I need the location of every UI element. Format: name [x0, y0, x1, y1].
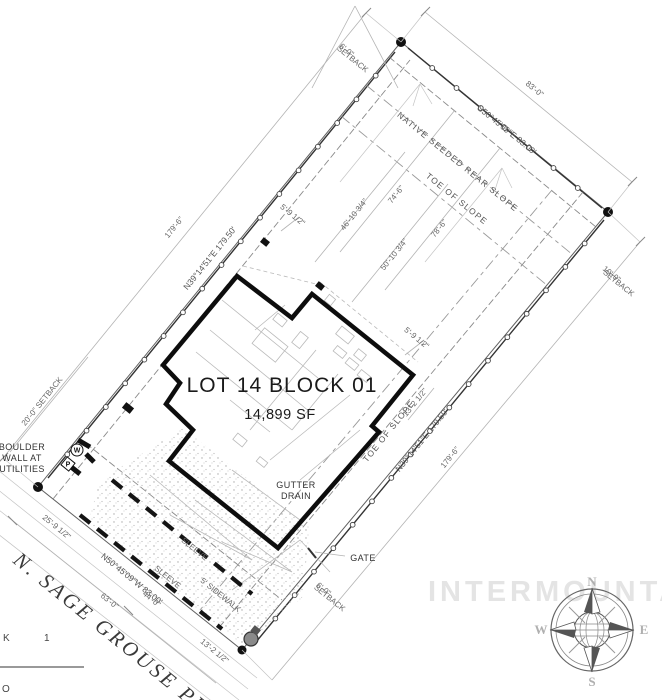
compass-east-petal: [608, 622, 634, 630]
lot-title: LOT 14 BLOCK 01: [187, 374, 378, 397]
bearing-ne: S50°45'09"E 83.00': [475, 103, 538, 157]
dim-street-13: 13'-2 1/2": [199, 637, 231, 665]
watermark-text: INTERMOUNTAIN: [428, 576, 662, 608]
sheet-edge-fragments: K 1 O: [0, 633, 84, 695]
dim-nw-overall: 179'-6": [163, 215, 186, 240]
power-pedestal-label: P: [66, 462, 71, 469]
setback-street-label: 20'-0" SETBACK: [20, 375, 65, 428]
gate-label: GATE: [350, 553, 375, 563]
boulder-wall-label-2: WALL AT: [2, 453, 42, 463]
dim-depth-46: 46'-10 3/4": [339, 197, 370, 232]
sheet-edge-text-k: K: [3, 633, 10, 644]
dim-offset-5-right: 5'-9 1/2": [402, 325, 431, 351]
sheet-edge-text-o: O: [2, 684, 10, 695]
boulder-wall-label-3: UTILITIES: [0, 464, 45, 474]
dim-depth-74: 74'-6": [386, 184, 406, 206]
dim-street-63: 63'-0": [99, 591, 121, 611]
boulder-wall-segment: [86, 454, 94, 462]
compass-south-petal: [592, 646, 600, 672]
site-plan-canvas: INTERMOUNTAIN: [0, 0, 662, 700]
gutter-drain-label-2: DRAIN: [281, 491, 311, 501]
compass-south-label: S: [588, 674, 595, 689]
property-line: [38, 42, 608, 650]
dim-depth-50: 50'-10 3/4": [379, 237, 410, 272]
lot-area: 14,899 SF: [244, 407, 315, 423]
gutter-drain-label-1: GUTTER: [276, 480, 315, 490]
compass-west-petal: [550, 630, 576, 638]
dim-se-overall: 179'-6": [439, 445, 462, 470]
setback-se-word: SETBACK: [601, 268, 636, 299]
site-plan-drawing: INTERMOUNTAIN: [0, 0, 662, 700]
gate-symbol: [308, 548, 316, 558]
compass-west-label: W: [535, 622, 548, 637]
water-meter-label: W: [74, 448, 81, 455]
dim-offset-5-top: 5'-9 1/2": [278, 202, 307, 228]
driveway-gravel-area: [88, 428, 310, 645]
post-symbol: [260, 237, 270, 247]
boulder-wall-label-1: BOULDER: [0, 442, 45, 452]
compass-east-label: E: [640, 622, 649, 637]
post-symbol: [315, 281, 325, 291]
sheet-edge-text-1: 1: [44, 633, 50, 644]
compass-north-label: N: [587, 574, 597, 589]
